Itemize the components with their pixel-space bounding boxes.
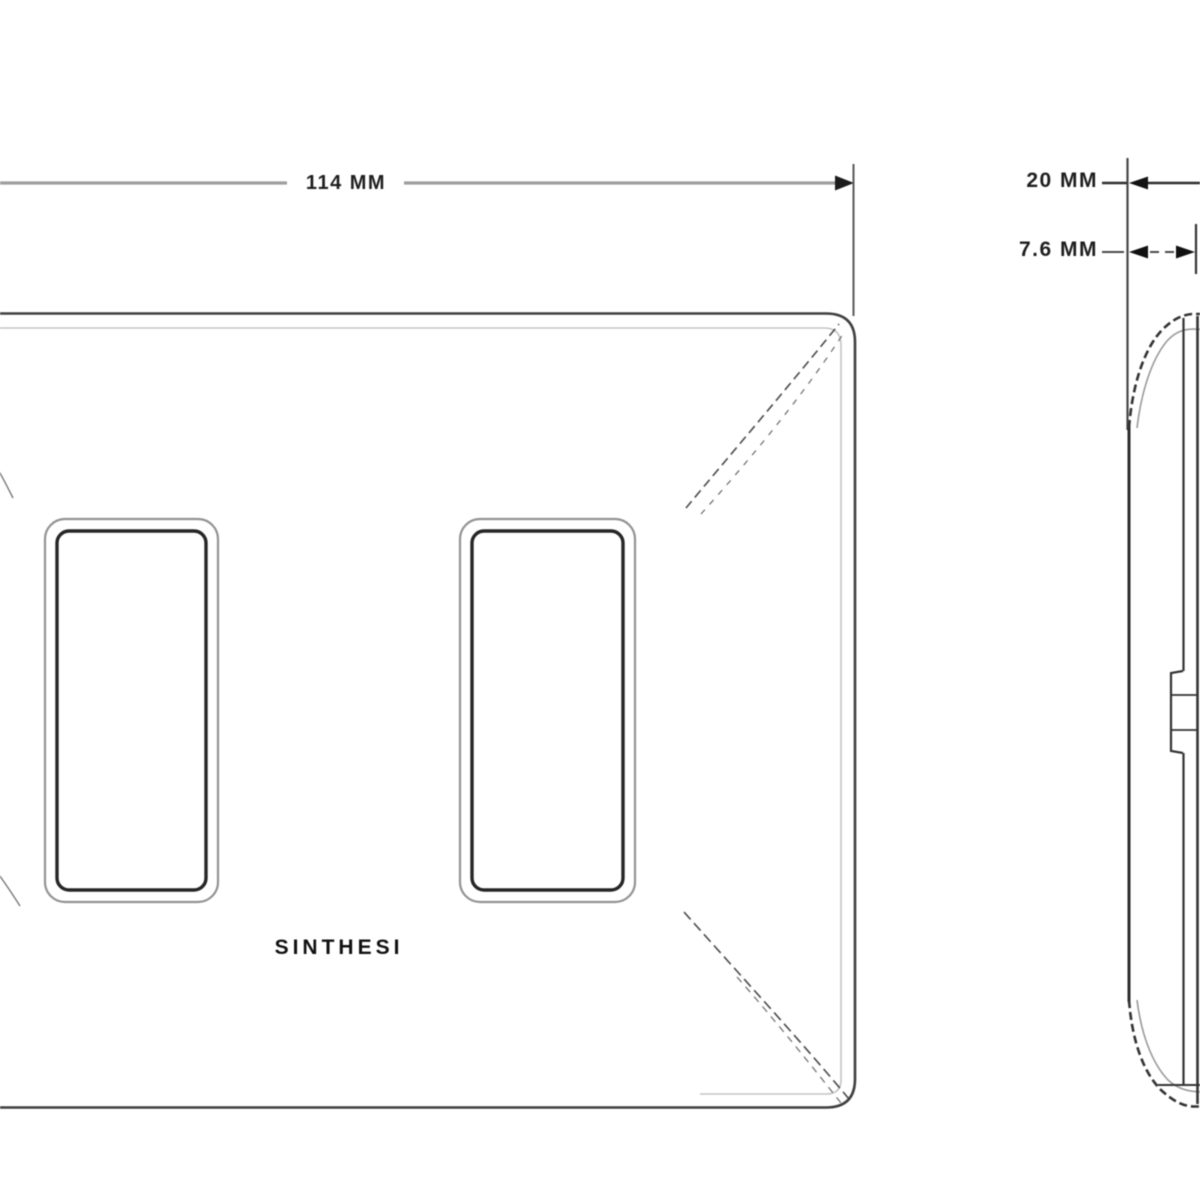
- opening-1-outer: [45, 519, 218, 902]
- depth-plate-arrow-left-icon: [1129, 246, 1148, 259]
- front-view: [0, 164, 855, 1108]
- reflection-sketch-left-edge: [0, 466, 20, 906]
- reflection-sketch-top-right: [686, 324, 843, 514]
- profile-clip-detail: [1171, 671, 1197, 753]
- opening-1-inner: [57, 531, 206, 890]
- width-dimension-arrow-icon: [835, 176, 854, 191]
- profile-back-frame: [1158, 316, 1200, 1104]
- side-plate-depth-dimension-label: 7.6 MM: [993, 239, 1098, 261]
- depth-total-arrow-icon: [1129, 177, 1148, 190]
- front-width-dimension-label: 114 MM: [286, 172, 406, 194]
- depth-plate-dimension: [1102, 224, 1196, 274]
- plate-outline: [0, 314, 855, 1108]
- opening-2-inner: [472, 531, 623, 890]
- profile-top-bevel: [1137, 329, 1200, 428]
- technical-drawing-canvas: 114 MM 20 MM 7.6 MM SINTHESI: [0, 0, 1200, 1200]
- plate-bevel-line: [0, 328, 841, 1094]
- side-view: [1102, 158, 1200, 1107]
- brand-label: SINTHESI: [239, 936, 439, 960]
- depth-plate-arrow-right-icon: [1176, 246, 1195, 259]
- depth-total-dimension: [1102, 177, 1200, 190]
- side-total-depth-dimension-label: 20 MM: [998, 170, 1098, 192]
- opening-2-outer: [460, 519, 635, 902]
- profile-bottom-bevel: [1137, 1000, 1200, 1092]
- reflection-sketch-bottom-right: [684, 912, 849, 1103]
